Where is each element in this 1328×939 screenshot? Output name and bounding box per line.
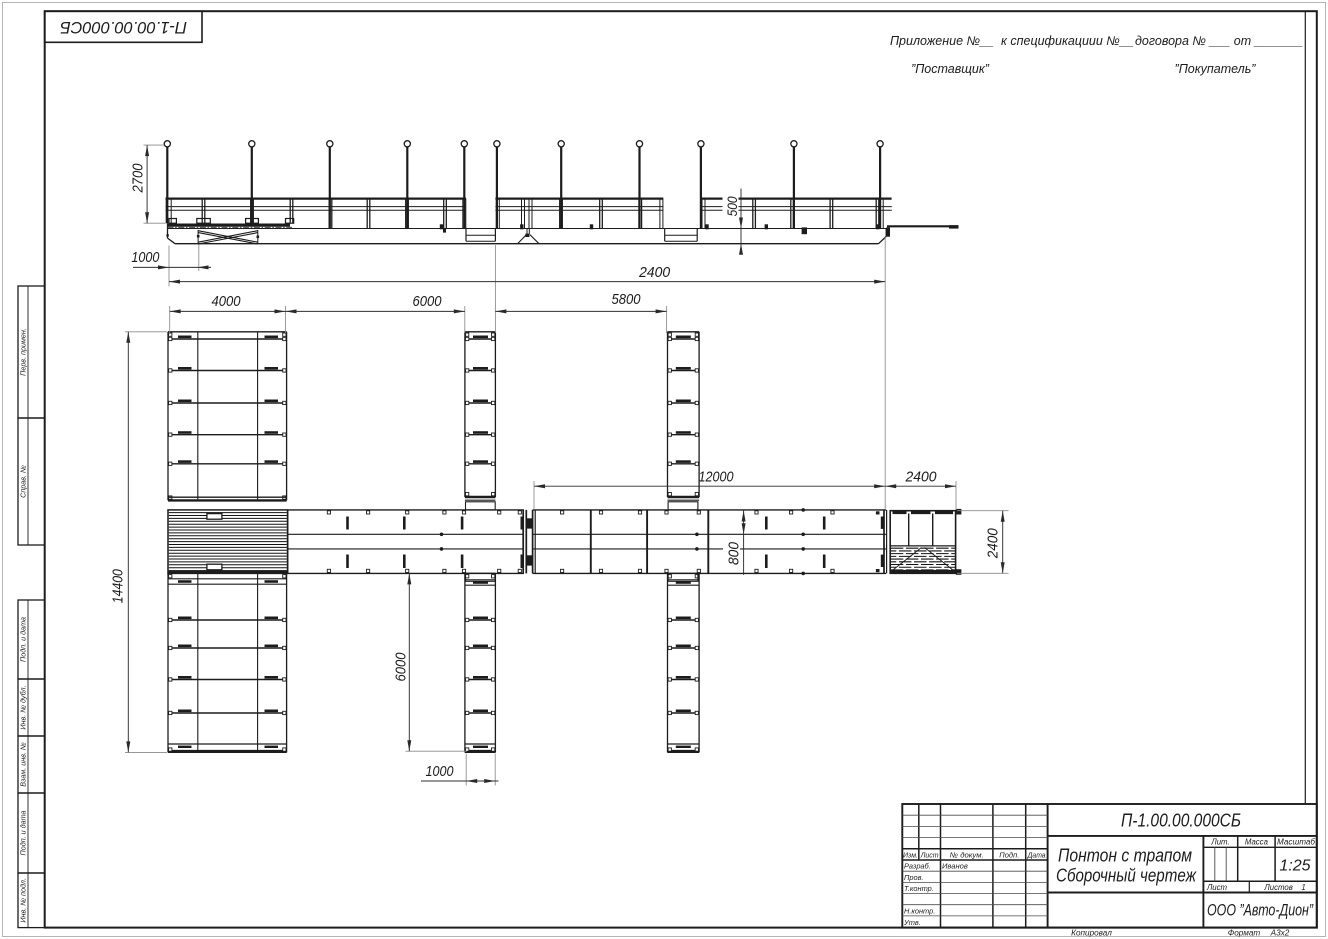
svg-text:Лист: Лист [1206,883,1228,892]
svg-text:П-1.00.00.000СБ: П-1.00.00.000СБ [1121,811,1241,831]
svg-text:к спецификациии №__: к спецификациии №__ [1001,34,1134,48]
svg-text:2400: 2400 [905,469,938,486]
svg-text:Понтон с трапом: Понтон с трапом [1058,846,1192,866]
svg-text:Пров.: Пров. [904,873,924,882]
svg-text:Взам. инв. №: Взам. инв. № [19,742,28,787]
svg-text:Инв. № подл.: Инв. № подл. [19,878,28,923]
svg-text:6000: 6000 [413,293,443,310]
svg-text:Подп.: Подп. [999,850,1019,859]
svg-text:П-1.00.00.000СБ: П-1.00.00.000СБ [60,18,187,36]
svg-text:Лист: Лист [920,850,939,859]
svg-text:Подп. и дата: Подп. и дата [19,617,28,662]
svg-text:Приложение №__: Приложение №__ [890,34,994,48]
svg-text:1:25: 1:25 [1279,858,1310,875]
svg-text:Масса: Масса [1245,838,1269,847]
svg-text:Листов: Листов [1263,883,1292,892]
svg-text:1: 1 [1301,883,1305,892]
svg-text:1000: 1000 [426,763,455,780]
svg-text:Подп. и дата: Подп. и дата [19,811,28,856]
svg-text:Формат: Формат [1228,929,1261,938]
svg-text:”Поставщик”: ”Поставщик” [911,62,990,76]
svg-text:4000: 4000 [212,293,242,310]
svg-text:Иванов: Иванов [942,862,968,871]
svg-text:Лит.: Лит. [1210,838,1229,847]
svg-text:Изм.: Изм. [903,850,918,859]
svg-text:Копировал: Копировал [1071,929,1112,938]
svg-text:Сборочный чертеж: Сборочный чертеж [1056,866,1197,886]
svg-text:500: 500 [724,196,740,216]
svg-text:№ докум.: № докум. [950,850,984,859]
svg-text:А3х2: А3х2 [1270,929,1290,938]
svg-text:”Покупатель”: ”Покупатель” [1175,62,1257,76]
svg-text:Дата: Дата [1027,850,1046,859]
svg-text:Инв. № дубл.: Инв. № дубл. [19,685,28,729]
svg-text:Утв.: Утв. [903,918,921,927]
svg-text:ООО ”Авто-Дион”: ООО ”Авто-Дион” [1207,901,1314,920]
svg-text:12000: 12000 [699,469,735,486]
svg-text:1000: 1000 [131,249,160,266]
svg-text:14400: 14400 [110,569,127,604]
svg-text:Н.контр.: Н.контр. [904,907,935,916]
svg-text:Перв. примен.: Перв. примен. [19,328,28,376]
svg-text:договора № ___ от _______: договора № ___ от _______ [1135,34,1303,48]
svg-text:5800: 5800 [612,291,642,308]
svg-text:Разраб.: Разраб. [904,862,931,871]
svg-text:2400: 2400 [985,528,1002,559]
svg-text:2700: 2700 [130,163,147,193]
svg-text:6000: 6000 [393,652,410,682]
svg-text:800: 800 [726,541,743,565]
svg-text:Т.контр.: Т.контр. [904,884,934,893]
svg-text:Справ. №: Справ. № [19,465,28,498]
svg-text:2400: 2400 [638,264,671,281]
svg-text:Масштаб: Масштаб [1277,838,1316,847]
